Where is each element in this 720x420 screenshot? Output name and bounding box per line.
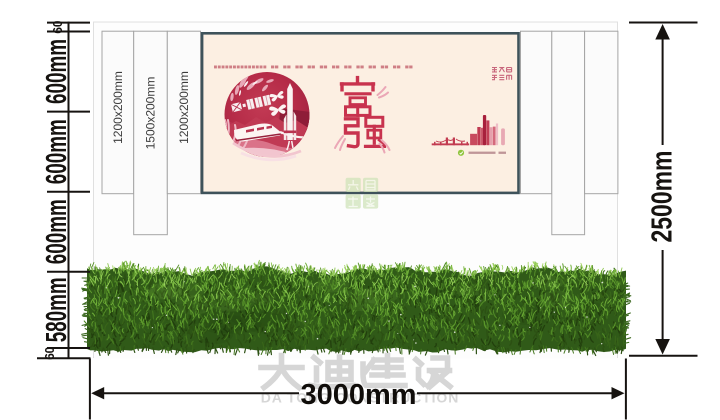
svg-text:2500mm: 2500mm [647,151,679,243]
svg-text:60: 60 [42,347,57,360]
svg-text:600mm: 600mm [41,119,73,184]
svg-text:580mm: 580mm [41,277,73,342]
svg-text:3000mm: 3000mm [300,379,416,411]
svg-text:1200x200mm: 1200x200mm [111,71,125,144]
svg-text:1500x200mm: 1500x200mm [144,77,158,150]
svg-text:600mm: 600mm [41,199,73,264]
svg-text:60: 60 [50,21,65,34]
svg-text:1200x200mm: 1200x200mm [177,71,191,144]
svg-text:600mm: 600mm [41,39,73,104]
